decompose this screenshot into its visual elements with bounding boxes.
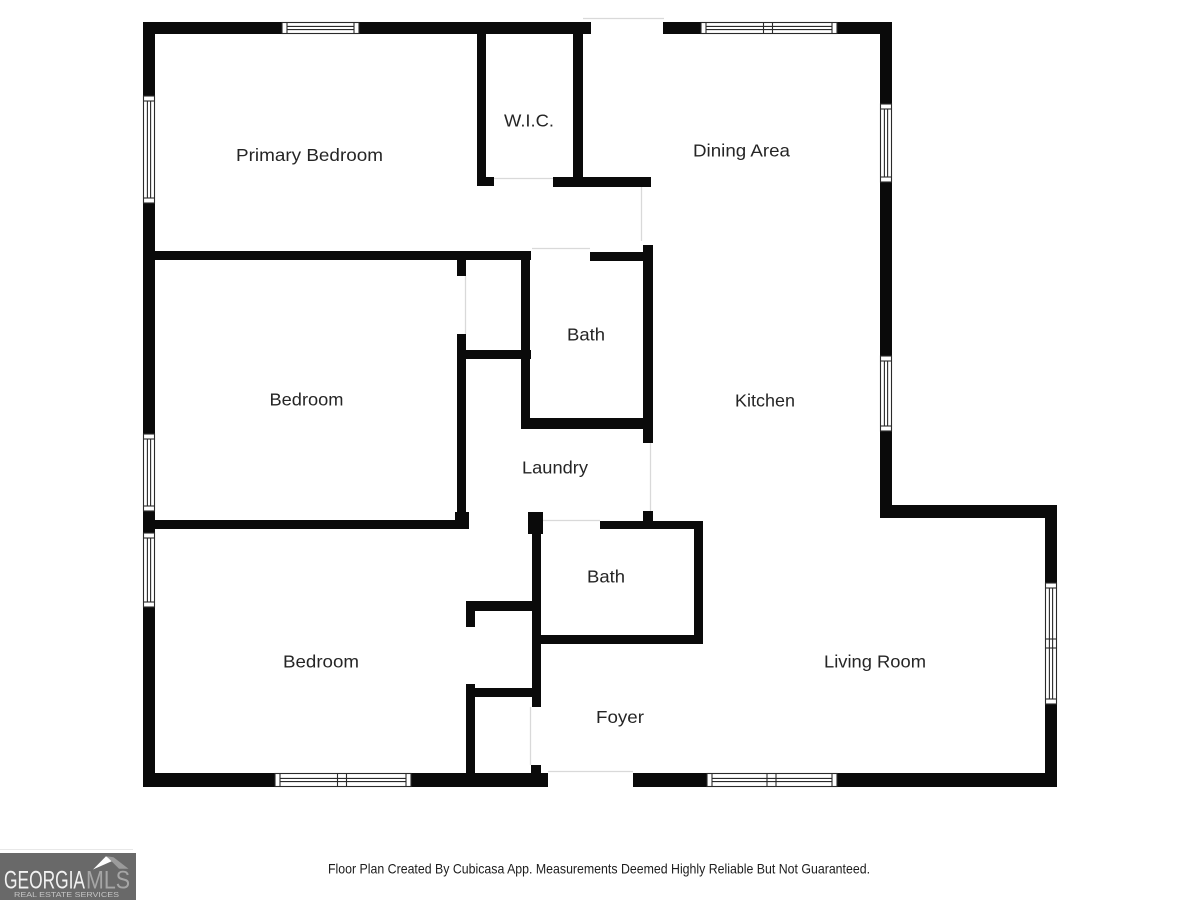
svg-text:Kitchen: Kitchen: [735, 391, 795, 411]
svg-text:Floor Plan Created By Cubicasa: Floor Plan Created By Cubicasa App. Meas…: [328, 861, 870, 877]
svg-text:Bedroom: Bedroom: [270, 390, 344, 410]
svg-text:Bedroom: Bedroom: [283, 652, 359, 672]
svg-text:Laundry: Laundry: [522, 458, 588, 478]
svg-text:W.I.C.: W.I.C.: [504, 111, 554, 131]
svg-text:Bath: Bath: [587, 567, 625, 587]
svg-text:GEORGIA: GEORGIA: [4, 867, 85, 895]
svg-text:Dining Area: Dining Area: [693, 141, 790, 161]
svg-text:REAL ESTATE SERVICES: REAL ESTATE SERVICES: [14, 892, 119, 899]
svg-text:Primary Bedroom: Primary Bedroom: [236, 145, 383, 165]
svg-text:MLS: MLS: [86, 867, 130, 895]
svg-text:Foyer: Foyer: [596, 707, 644, 727]
svg-text:Living Room: Living Room: [824, 652, 926, 672]
svg-text:Bath: Bath: [567, 325, 605, 345]
